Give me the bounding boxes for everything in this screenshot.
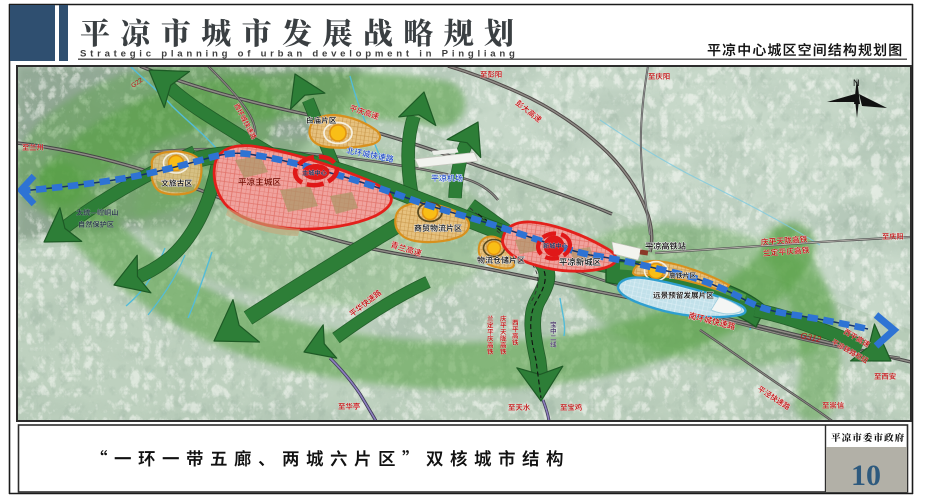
svg-text:N: N: [853, 78, 860, 88]
svg-text:10: 10: [851, 459, 881, 492]
svg-text:Strategic planning of urban de: Strategic planning of urban development …: [80, 49, 519, 60]
